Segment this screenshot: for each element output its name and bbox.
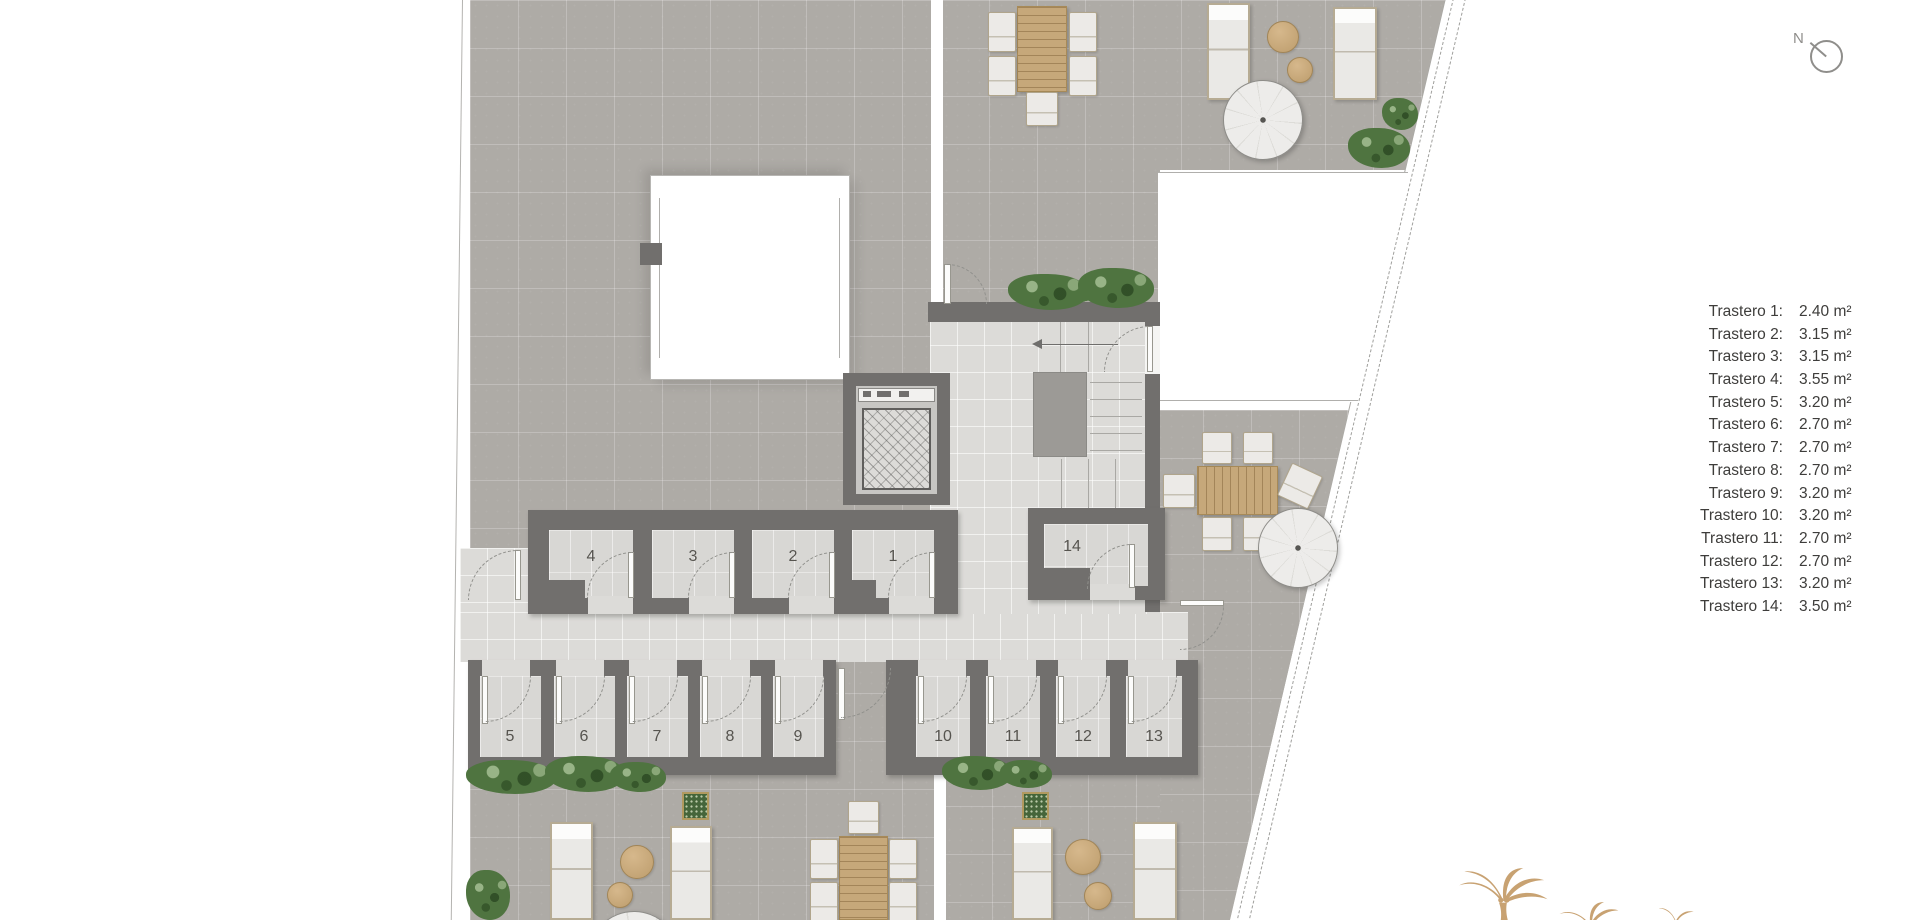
room-number-label: 4: [587, 549, 596, 565]
wood-dining-table: [839, 836, 888, 920]
chair: [848, 801, 879, 834]
legend-room-label: Trastero 13:: [1650, 573, 1783, 596]
legend-room-area: 3.20 m²: [1799, 392, 1852, 415]
legend-row: Trastero 11:2.70 m²: [1650, 528, 1890, 551]
legend-row: Trastero 6:2.70 m²: [1650, 414, 1890, 437]
legend-room-area: 2.70 m²: [1799, 528, 1852, 551]
room-7-door-opening: [629, 660, 677, 676]
legend-room-label: Trastero 6:: [1650, 414, 1783, 437]
sun-lounger: [1333, 7, 1377, 100]
room-number-label: 11: [1005, 729, 1022, 745]
round-pouf: [1084, 882, 1112, 910]
room-number-label: 1: [889, 549, 898, 565]
legend-row: Trastero 5:3.20 m²: [1650, 392, 1890, 415]
legend-room-label: Trastero 9:: [1650, 483, 1783, 506]
legend-room-label: Trastero 7:: [1650, 437, 1783, 460]
chair: [889, 839, 917, 879]
room-4-door-opening: [588, 596, 633, 614]
legend-row: Trastero 4:3.55 m²: [1650, 369, 1890, 392]
chair: [810, 839, 838, 879]
legend-room-area: 2.70 m²: [1799, 437, 1852, 460]
skylight-glass-line: [659, 198, 660, 358]
room-14-notch: [1044, 568, 1090, 586]
legend-room-area: 2.70 m²: [1799, 414, 1852, 437]
round-pouf: [1267, 21, 1299, 53]
legend-room-label: Trastero 1:: [1650, 301, 1783, 324]
bush: [1382, 98, 1418, 130]
legend-room-area: 2.40 m²: [1799, 301, 1852, 324]
legend-row: Trastero 9:3.20 m²: [1650, 483, 1890, 506]
stair-tread-line: [1090, 399, 1142, 400]
legend-row: Trastero 8:2.70 m²: [1650, 460, 1890, 483]
legend-room-label: Trastero 2:: [1650, 324, 1783, 347]
elevator-mechanism-mark: [863, 391, 871, 397]
bush: [466, 870, 510, 920]
elevator-mechanism-mark: [899, 391, 909, 397]
chair: [1026, 92, 1058, 126]
legend-room-label: Trastero 12:: [1650, 551, 1783, 574]
legend-room-label: Trastero 11:: [1650, 528, 1783, 551]
room-number-label: 5: [506, 729, 515, 745]
room-1-door-opening: [889, 596, 934, 614]
palm-tree-icon: [1448, 868, 1564, 920]
floor-plan-canvas: 4 3 2 1 14 5 6 7 8 9 10 11 12 13: [0, 0, 1920, 920]
skylight-void-right: [1158, 172, 1410, 402]
legend-row: Trastero 3:3.15 m²: [1650, 346, 1890, 369]
palm-tree-icon: [1655, 903, 1699, 920]
room-8-door-opening: [702, 660, 750, 676]
chair: [1069, 12, 1097, 52]
chair: [1202, 517, 1232, 551]
legend-room-label: Trastero 8:: [1650, 460, 1783, 483]
legend-room-area: 3.55 m²: [1799, 369, 1852, 392]
legend-row: Trastero 7:2.70 m²: [1650, 437, 1890, 460]
chair: [1243, 432, 1273, 464]
stair-tread-line: [1088, 459, 1089, 512]
room-number-label: 13: [1145, 729, 1163, 745]
stair-void: [1033, 372, 1087, 457]
room-9-door-opening: [775, 660, 823, 676]
chair: [1069, 56, 1097, 96]
room-1-notch: [852, 580, 876, 598]
sun-lounger: [1133, 822, 1177, 920]
chair: [988, 12, 1016, 52]
stair-tread-line: [1090, 433, 1142, 434]
legend-room-area: 3.20 m²: [1799, 483, 1852, 506]
area-legend: Trastero 1:2.40 m² Trastero 2:3.15 m² Tr…: [1650, 301, 1890, 619]
chair: [810, 882, 838, 920]
stair-tread-line: [1115, 459, 1116, 512]
room-number-label: 2: [789, 549, 798, 565]
legend-room-area: 3.15 m²: [1799, 346, 1852, 369]
room-number-label: 6: [580, 729, 589, 745]
room-number-label: 8: [726, 729, 735, 745]
legend-room-label: Trastero 10:: [1650, 505, 1783, 528]
corridor-main: [460, 612, 1188, 662]
room-11-door-opening: [988, 660, 1036, 676]
room-6-door-opening: [556, 660, 604, 676]
legend-room-area: 3.15 m²: [1799, 324, 1852, 347]
terrace-divider-strip-bottom: [934, 758, 946, 920]
palm-tree-icon: [1552, 902, 1632, 920]
room-4-notch: [549, 580, 585, 598]
stair-direction-arrow-head: [1032, 339, 1042, 349]
legend-room-area: 3.50 m²: [1799, 596, 1852, 619]
room-2-door-opening: [789, 596, 834, 614]
terrace-divider-strip-top: [931, 0, 943, 303]
legend-room-area: 3.20 m²: [1799, 505, 1852, 528]
parasol: [1258, 508, 1338, 588]
wood-dining-table: [1017, 6, 1067, 92]
room-12-door-opening: [1058, 660, 1106, 676]
round-pouf: [607, 882, 633, 908]
legend-row: Trastero 1:2.40 m²: [1650, 301, 1890, 324]
stair-tread-line: [1090, 382, 1142, 383]
planter-box: [682, 792, 709, 820]
legend-room-area: 3.20 m²: [1799, 573, 1852, 596]
stair-tread-line: [1060, 322, 1061, 372]
skylight-void-left: [650, 175, 850, 380]
room-number-label: 3: [689, 549, 698, 565]
legend-row: Trastero 13:3.20 m²: [1650, 573, 1890, 596]
legend-row: Trastero 2:3.15 m²: [1650, 324, 1890, 347]
chair: [1202, 432, 1232, 464]
room-10-door-opening: [918, 660, 966, 676]
room-number-label: 7: [653, 729, 662, 745]
legend-row: Trastero 12:2.70 m²: [1650, 551, 1890, 574]
stair-tread-line: [1090, 450, 1142, 451]
legend-room-label: Trastero 3:: [1650, 346, 1783, 369]
elevator-mechanism-mark: [877, 391, 891, 397]
legend-room-label: Trastero 5:: [1650, 392, 1783, 415]
stair-direction-arrow-line: [1042, 344, 1118, 345]
parasol: [1223, 80, 1303, 160]
room-number-label: 14: [1063, 539, 1081, 555]
room-number-label: 9: [794, 729, 803, 745]
legend-row: Trastero 14:3.50 m²: [1650, 596, 1890, 619]
room-number-label: 10: [934, 729, 952, 745]
legend-room-area: 2.70 m²: [1799, 551, 1852, 574]
elevator-car: [862, 408, 931, 490]
room-13-door-opening: [1128, 660, 1176, 676]
chair: [1163, 474, 1195, 508]
round-pouf: [1287, 57, 1313, 83]
planter-box: [1022, 792, 1049, 820]
sun-lounger: [1012, 827, 1053, 920]
legend-room-label: Trastero 4:: [1650, 369, 1783, 392]
north-indicator: N: [1780, 25, 1850, 85]
plot-boundary-left-line: [451, 0, 463, 920]
room-5-door-opening: [482, 660, 530, 676]
legend-room-area: 2.70 m²: [1799, 460, 1852, 483]
sun-lounger: [550, 822, 593, 920]
void-right-outline-bottom: [1158, 400, 1358, 401]
void-right-outline-top: [1158, 172, 1408, 173]
stair-tread-line: [1061, 459, 1062, 512]
chimney-block: [640, 243, 662, 265]
chair: [889, 882, 917, 920]
round-pouf: [620, 845, 654, 879]
north-label: N: [1793, 30, 1804, 47]
round-pouf: [1065, 839, 1101, 875]
wood-dining-table: [1197, 466, 1278, 515]
legend-row: Trastero 10:3.20 m²: [1650, 505, 1890, 528]
stair-tread-line: [1090, 416, 1142, 417]
stair-tread-line: [1088, 322, 1089, 372]
sun-lounger: [670, 826, 712, 920]
skylight-glass-line: [839, 198, 840, 358]
room-3-door-opening: [689, 596, 734, 614]
chair: [988, 56, 1016, 96]
room-number-label: 12: [1074, 729, 1092, 745]
legend-room-label: Trastero 14:: [1650, 596, 1783, 619]
